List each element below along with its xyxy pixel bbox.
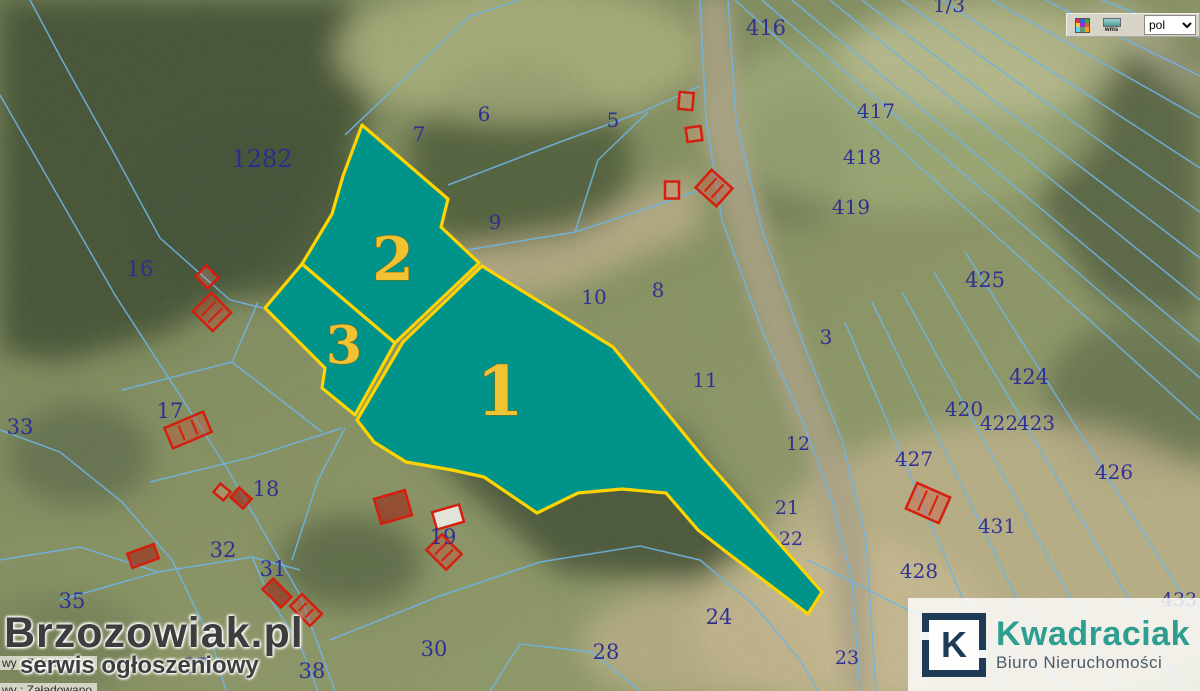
parcel-number: 18: [253, 477, 280, 501]
parcel-number: 1/3: [933, 0, 965, 17]
parcel-number: 9: [489, 210, 502, 234]
language-select[interactable]: pol: [1144, 15, 1196, 35]
agency-logo-mark: K: [922, 613, 986, 677]
parcel-number: 35: [59, 589, 86, 613]
parcel-number: 12: [786, 433, 810, 455]
parcel-number: 5: [607, 108, 620, 132]
highlighted-parcel-label-1: 1: [476, 352, 523, 432]
parcel-number: 28: [593, 640, 620, 664]
parcel-number: 37: [183, 654, 210, 678]
building-outline: [686, 126, 703, 142]
parcel-number: 11: [692, 368, 717, 392]
map-viewer: 1282163317183231353738301928242376591083…: [0, 0, 1200, 691]
parcel-number: 38: [299, 659, 326, 683]
parcel-number: 8: [652, 278, 665, 302]
agency-subtitle: Biuro Nieruchomości: [996, 653, 1190, 673]
parcel-number: 420: [945, 397, 983, 421]
parcel-number: 19: [430, 525, 457, 549]
status-message-1: wy : Załadowano: [0, 656, 97, 670]
parcel-number: 24: [706, 605, 733, 629]
wms-label: wms: [1105, 27, 1118, 33]
agency-logo-panel: K Kwadraciak Biuro Nieruchomości: [908, 598, 1200, 691]
parcel-number: 425: [965, 268, 1005, 292]
parcel-number: 33: [7, 415, 34, 439]
parcel-number: 30: [421, 637, 448, 661]
parcel-number: 428: [900, 559, 938, 583]
parcel-number: 32: [210, 538, 237, 562]
parcel-number: 423: [1017, 411, 1055, 435]
parcel-number: 431: [978, 514, 1016, 538]
parcel-number: 1282: [231, 145, 292, 173]
agency-logo-letter: K: [941, 624, 967, 666]
parcel-number: 10: [581, 285, 606, 309]
parcel-number: 416: [746, 16, 786, 40]
legend-grid-icon[interactable]: [1075, 18, 1090, 33]
parcel-number: 422: [980, 411, 1018, 435]
parcel-number: 16: [127, 257, 154, 281]
parcel-number: 23: [835, 647, 859, 669]
parcel-number: 21: [775, 497, 799, 519]
highlighted-parcel-label-3: 3: [326, 316, 362, 377]
parcel-number: 3: [820, 325, 833, 349]
agency-name: Kwadraciak: [996, 617, 1190, 651]
building-outline: [665, 182, 679, 199]
parcel-number: 6: [478, 102, 491, 126]
parcel-number: 31: [260, 557, 287, 581]
parcel-number: 427: [895, 447, 933, 471]
status-message-2: wy : Załadowano: [0, 683, 97, 691]
building-outline: [678, 92, 693, 110]
map-canvas[interactable]: 1282163317183231353738301928242376591083…: [0, 0, 1200, 691]
parcel-number: 418: [843, 145, 881, 169]
parcel-number: 424: [1009, 365, 1049, 389]
parcel-number: 17: [157, 399, 184, 423]
parcel-number: 7: [413, 122, 426, 146]
wms-icon[interactable]: wms: [1104, 18, 1119, 33]
map-toolbar: wms pol: [1066, 13, 1200, 37]
parcel-number: 426: [1095, 460, 1133, 484]
parcel-number: 419: [832, 195, 870, 219]
parcel-number: 417: [857, 99, 895, 123]
highlighted-parcel-label-2: 2: [372, 225, 414, 295]
